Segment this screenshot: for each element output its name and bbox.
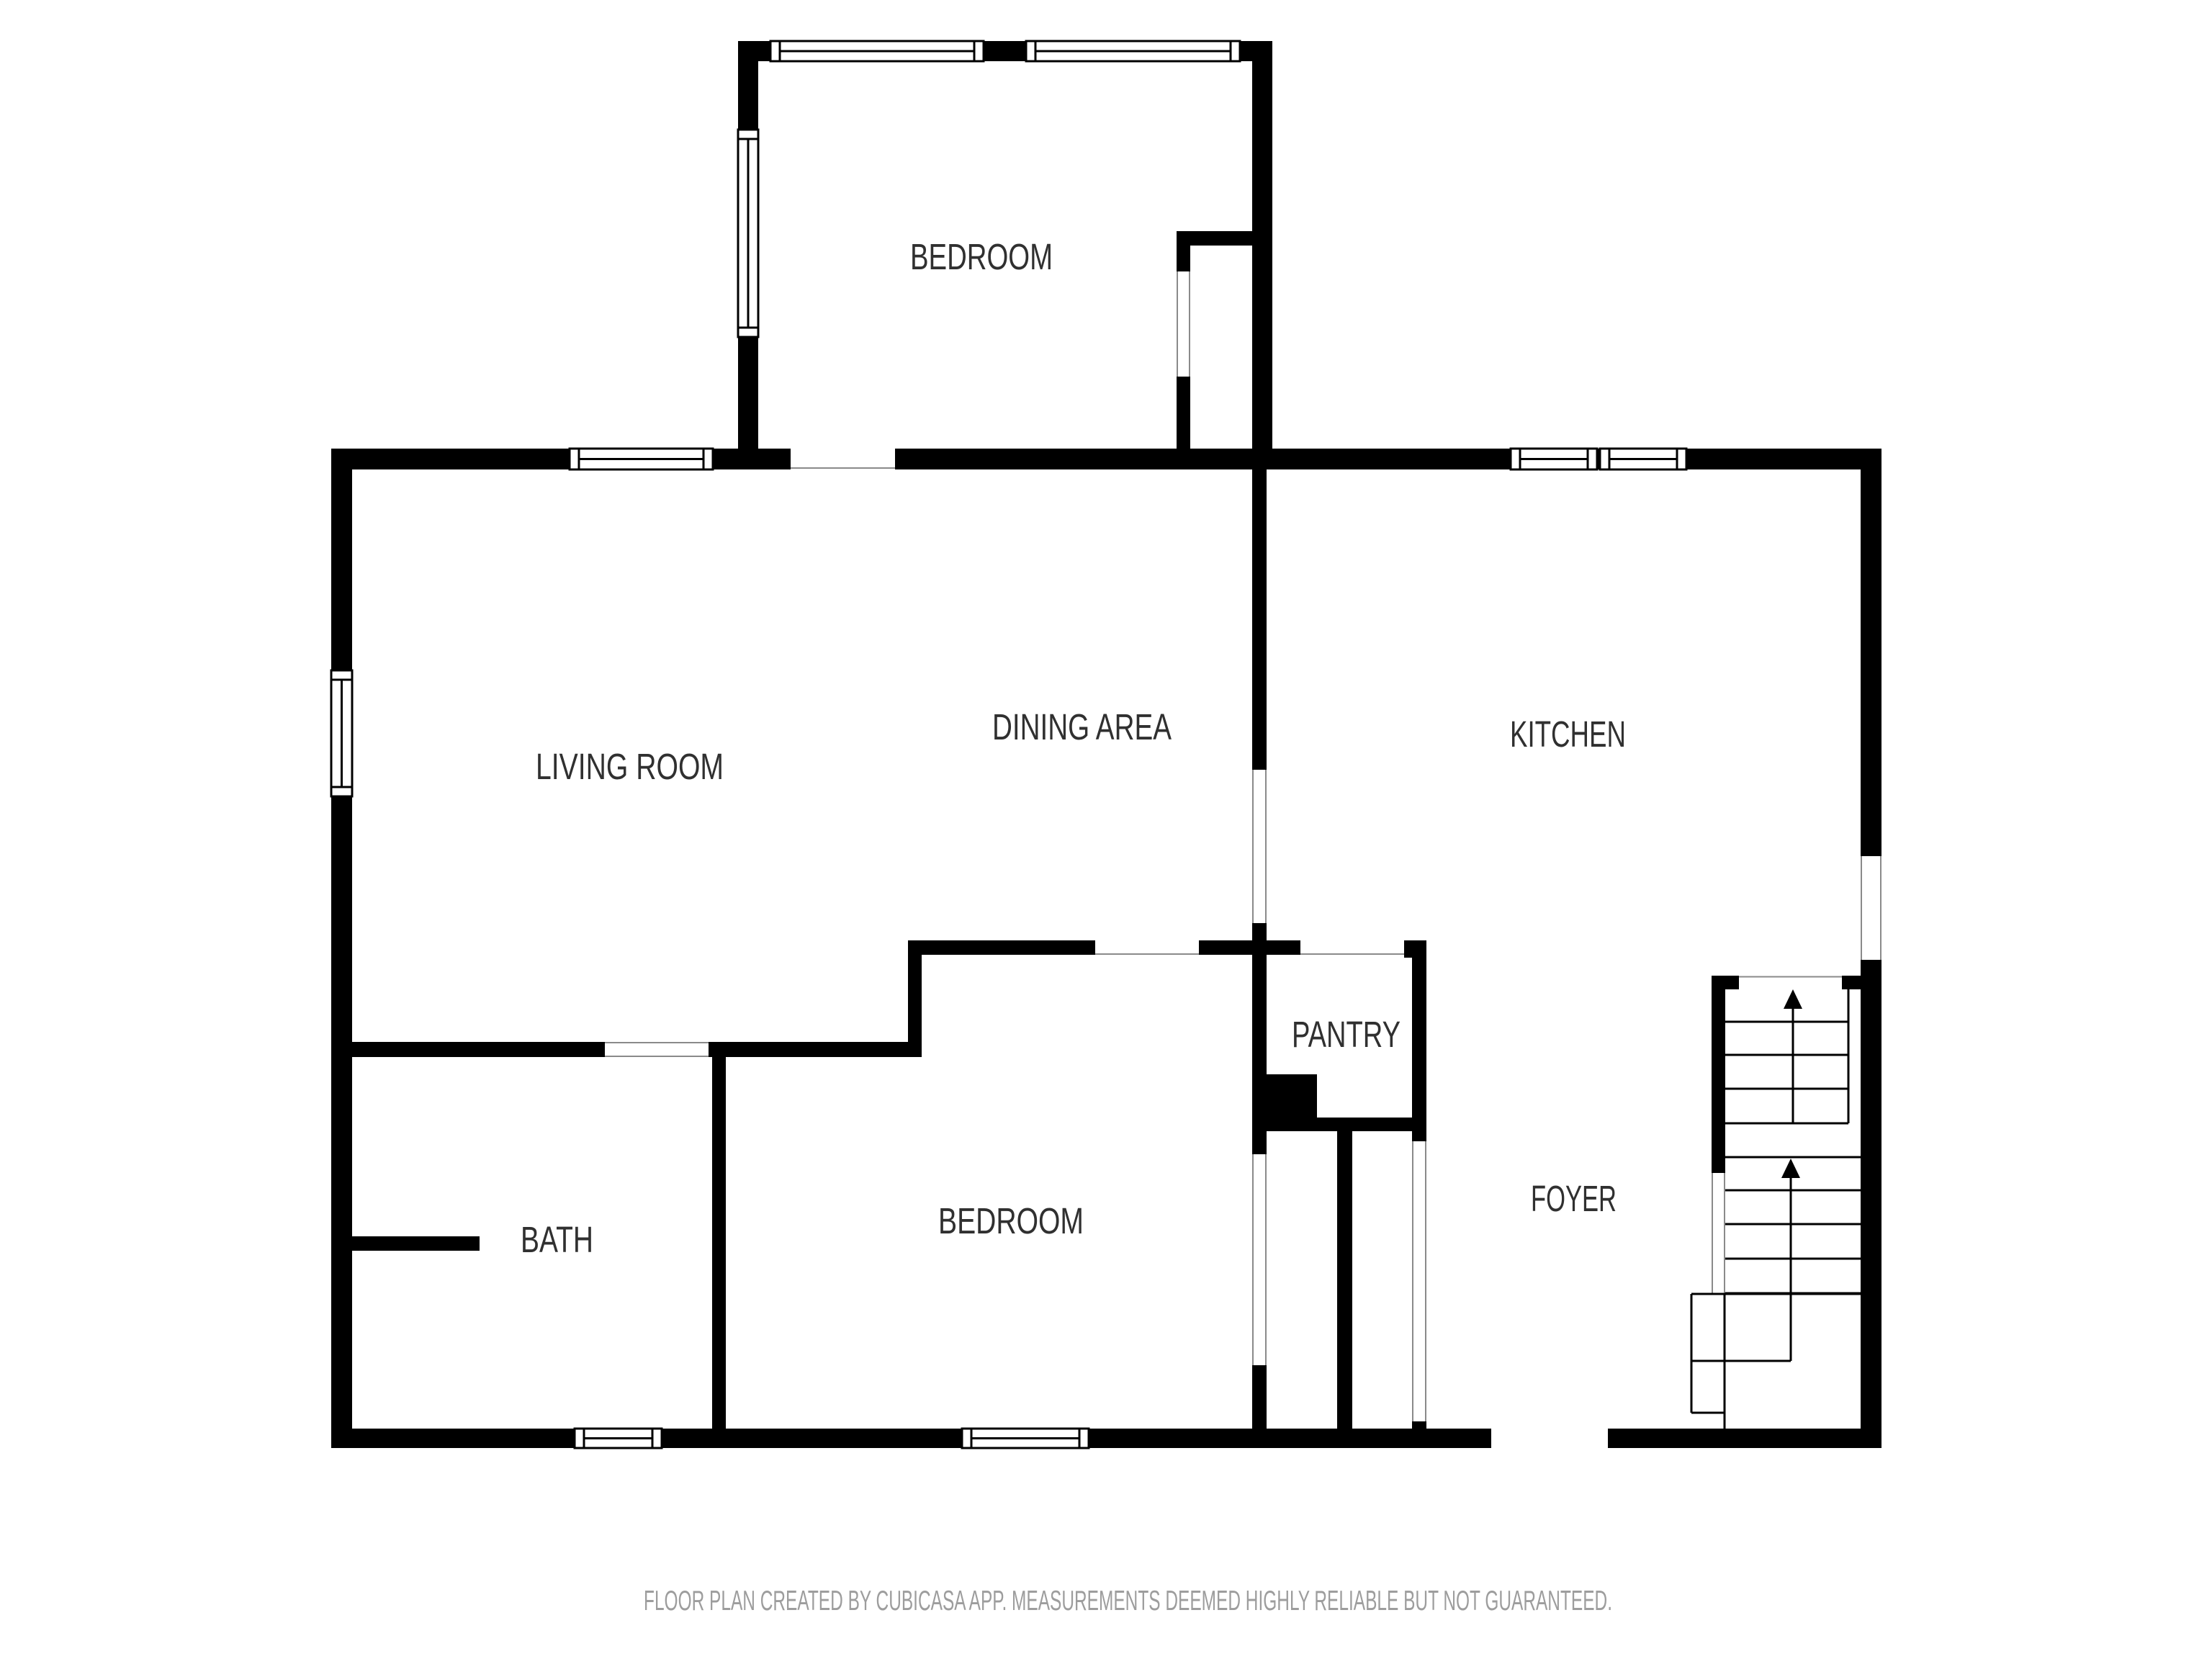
svg-text:BEDROOM: BEDROOM [938, 1200, 1084, 1241]
svg-text:BEDROOM: BEDROOM [910, 236, 1053, 277]
svg-text:LIVING ROOM: LIVING ROOM [536, 746, 724, 787]
svg-text:FLOOR PLAN CREATED BY CUBICASA: FLOOR PLAN CREATED BY CUBICASA APP. MEAS… [644, 1586, 1612, 1617]
svg-text:DINING AREA: DINING AREA [992, 706, 1172, 747]
svg-text:KITCHEN: KITCHEN [1510, 714, 1626, 755]
svg-text:PANTRY: PANTRY [1292, 1014, 1401, 1055]
svg-text:FOYER: FOYER [1531, 1178, 1617, 1219]
svg-text:BATH: BATH [521, 1219, 593, 1260]
